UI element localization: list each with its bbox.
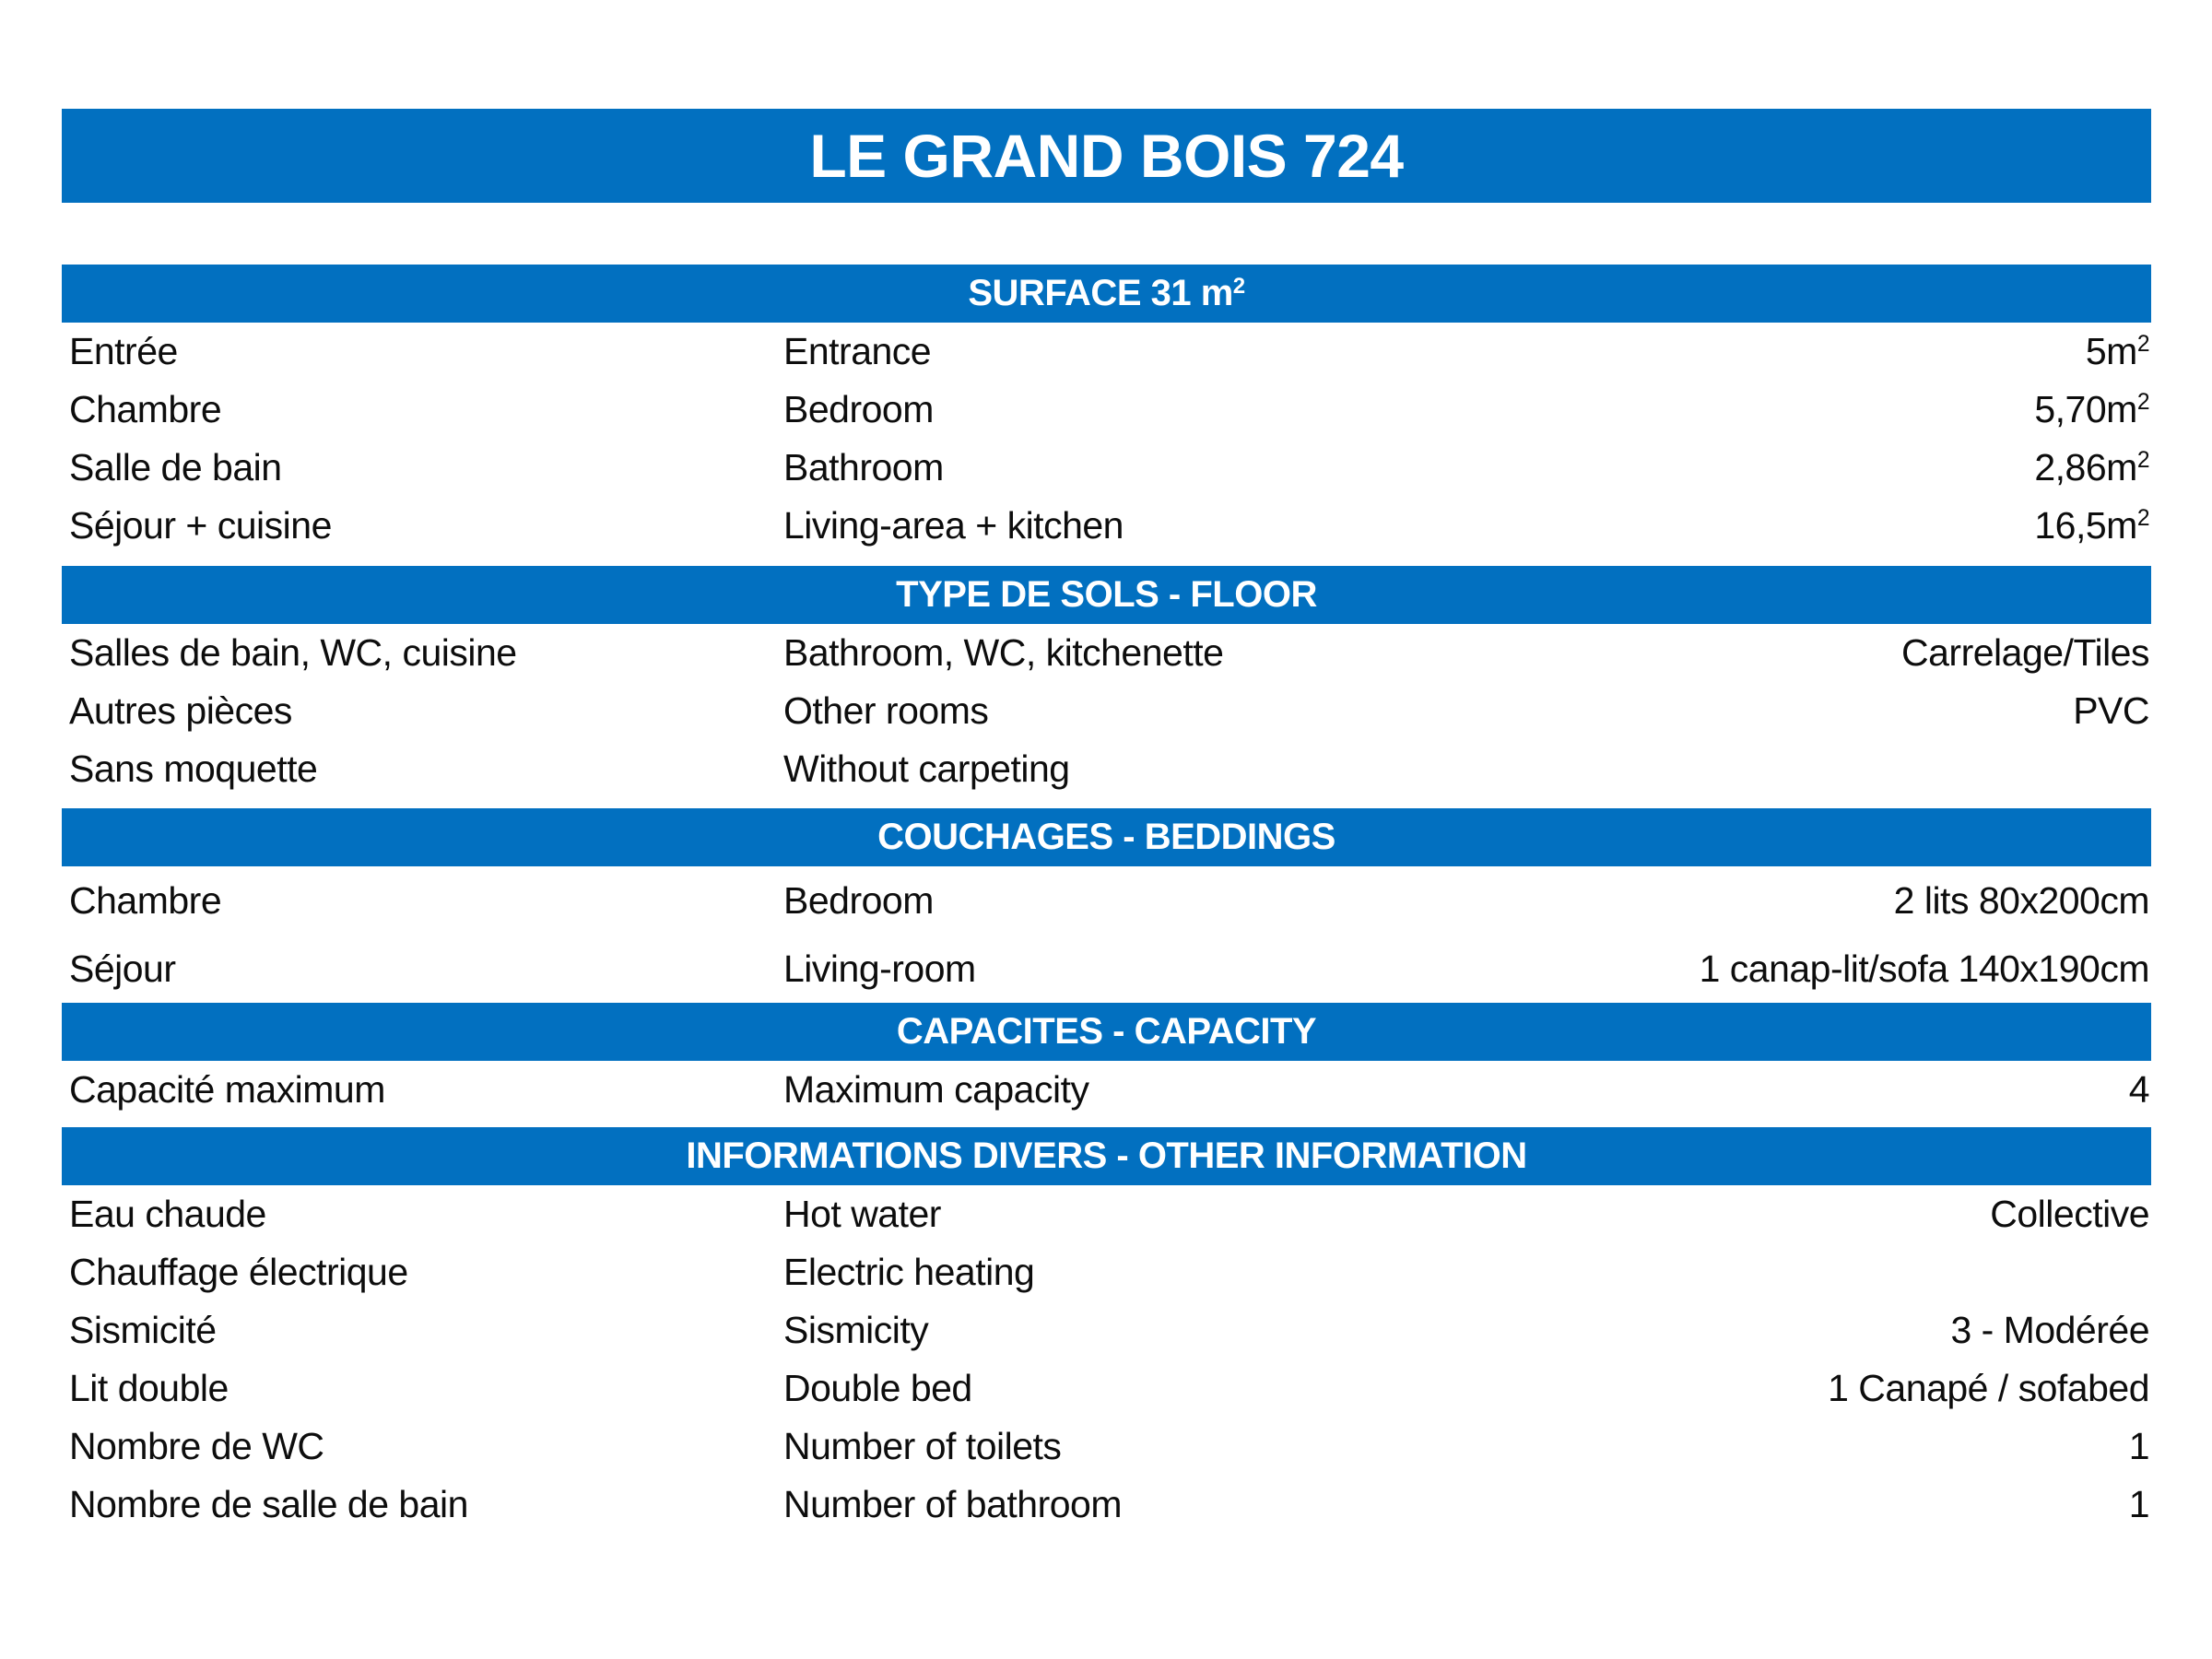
row-label-fr: Autres pièces <box>69 689 783 733</box>
table-row: Nombre de salle de bainNumber of bathroo… <box>62 1476 2151 1534</box>
page-title: LE GRAND BOIS 724 <box>809 121 1403 191</box>
row-label-en: Number of bathroom <box>783 1483 2129 1526</box>
row-label-en: Sismicity <box>783 1309 1950 1352</box>
row-value: Carrelage/Tiles <box>1901 631 2149 675</box>
row-label-en: Living-room <box>783 947 1700 991</box>
table-row: Autres piècesOther roomsPVC <box>62 682 2151 740</box>
table-row: SismicitéSismicity3 - Modérée <box>62 1301 2151 1359</box>
row-label-fr: Séjour + cuisine <box>69 504 783 547</box>
row-label-en: Bathroom, WC, kitchenette <box>783 631 1901 675</box>
row-label-en: Double bed <box>783 1367 1828 1410</box>
superscript-2: 2 <box>2137 448 2149 473</box>
row-label-fr: Chambre <box>69 388 783 431</box>
row-value: Collective <box>1990 1193 2149 1236</box>
row-label-en: Entrance <box>783 330 2086 373</box>
section-header-bar: INFORMATIONS DIVERS - OTHER INFORMATION <box>62 1127 2151 1185</box>
row-label-fr: Chambre <box>69 879 783 923</box>
superscript-2: 2 <box>2137 390 2149 415</box>
row-value: 1 <box>2129 1425 2149 1468</box>
row-label-en: Other rooms <box>783 689 2073 733</box>
row-label-fr: Chauffage électrique <box>69 1251 783 1294</box>
row-label-en: Electric heating <box>783 1251 2149 1294</box>
table-row: Sans moquetteWithout carpeting <box>62 740 2151 798</box>
table-row: Salles de bain, WC, cuisineBathroom, WC,… <box>62 624 2151 682</box>
section-title: TYPE DE SOLS - FLOOR <box>896 574 1317 616</box>
superscript-2: 2 <box>2137 332 2149 357</box>
row-value: 1 <box>2129 1483 2149 1526</box>
row-label-fr: Eau chaude <box>69 1193 783 1236</box>
section: COUCHAGES - BEDDINGSChambreBedroom2 lits… <box>62 808 2151 1003</box>
table-row: Nombre de WCNumber of toilets1 <box>62 1418 2151 1476</box>
superscript-2: 2 <box>2137 506 2149 531</box>
row-label-fr: Sismicité <box>69 1309 783 1352</box>
row-label-en: Living-area + kitchen <box>783 504 2034 547</box>
section: CAPACITES - CAPACITYCapacité maximumMaxi… <box>62 1003 2151 1119</box>
row-value: 2,86m2 <box>2034 446 2149 489</box>
row-label-en: Hot water <box>783 1193 1990 1236</box>
row-value: 4 <box>2129 1068 2149 1112</box>
row-label-en: Bathroom <box>783 446 2034 489</box>
row-label-fr: Lit double <box>69 1367 783 1410</box>
superscript-2: 2 <box>1233 274 1245 299</box>
row-value: 16,5m2 <box>2034 504 2149 547</box>
table-row: Séjour + cuisineLiving-area + kitchen16,… <box>62 497 2151 555</box>
row-label-fr: Nombre de salle de bain <box>69 1483 783 1526</box>
row-label-en: Bedroom <box>783 879 1894 923</box>
section: SURFACE 31 m2EntréeEntrance5m2ChambreBed… <box>62 265 2151 555</box>
table-row: Lit doubleDouble bed1 Canapé / sofabed <box>62 1359 2151 1418</box>
row-label-fr: Entrée <box>69 330 783 373</box>
row-value: 5m2 <box>2086 330 2149 373</box>
property-sheet: LE GRAND BOIS 724 SURFACE 31 m2EntréeEnt… <box>62 109 2151 1534</box>
section-header-bar: COUCHAGES - BEDDINGS <box>62 808 2151 866</box>
row-label-fr: Salle de bain <box>69 446 783 489</box>
row-label-fr: Sans moquette <box>69 747 783 791</box>
row-label-fr: Capacité maximum <box>69 1068 783 1112</box>
row-label-fr: Salles de bain, WC, cuisine <box>69 631 783 675</box>
row-value: 3 - Modérée <box>1950 1309 2149 1352</box>
table-row: Capacité maximumMaximum capacity4 <box>62 1061 2151 1119</box>
table-row: Eau chaudeHot waterCollective <box>62 1185 2151 1243</box>
table-row: EntréeEntrance5m2 <box>62 323 2151 381</box>
row-label-en: Maximum capacity <box>783 1068 2129 1112</box>
row-label-fr: Nombre de WC <box>69 1425 783 1468</box>
section: INFORMATIONS DIVERS - OTHER INFORMATIONE… <box>62 1127 2151 1534</box>
row-value: 1 Canapé / sofabed <box>1828 1367 2149 1410</box>
row-value: PVC <box>2073 689 2149 733</box>
sections: SURFACE 31 m2EntréeEntrance5m2ChambreBed… <box>62 265 2151 1534</box>
row-label-en: Bedroom <box>783 388 2034 431</box>
row-value: 2 lits 80x200cm <box>1894 879 2149 923</box>
table-row: Chauffage électriqueElectric heating <box>62 1243 2151 1301</box>
row-label-fr: Séjour <box>69 947 783 991</box>
section-header-bar: TYPE DE SOLS - FLOOR <box>62 566 2151 624</box>
table-row: ChambreBedroom5,70m2 <box>62 381 2151 439</box>
row-value: 1 canap-lit/sofa 140x190cm <box>1700 947 2149 991</box>
section-title: CAPACITES - CAPACITY <box>897 1011 1316 1053</box>
table-row: Salle de bainBathroom2,86m2 <box>62 439 2151 497</box>
section-header-bar: SURFACE 31 m2 <box>62 265 2151 323</box>
page: LE GRAND BOIS 724 SURFACE 31 m2EntréeEnt… <box>0 0 2212 1659</box>
section: TYPE DE SOLS - FLOORSalles de bain, WC, … <box>62 566 2151 798</box>
section-title: SURFACE 31 m2 <box>968 273 1244 314</box>
section-title: COUCHAGES - BEDDINGS <box>877 817 1335 858</box>
row-label-en: Without carpeting <box>783 747 2149 791</box>
section-title: INFORMATIONS DIVERS - OTHER INFORMATION <box>686 1135 1526 1177</box>
row-label-en: Number of toilets <box>783 1425 2129 1468</box>
section-header-bar: CAPACITES - CAPACITY <box>62 1003 2151 1061</box>
table-row: ChambreBedroom2 lits 80x200cm <box>62 866 2151 935</box>
row-value: 5,70m2 <box>2034 388 2149 431</box>
title-bar: LE GRAND BOIS 724 <box>62 109 2151 203</box>
table-row: SéjourLiving-room1 canap-lit/sofa 140x19… <box>62 935 2151 1003</box>
